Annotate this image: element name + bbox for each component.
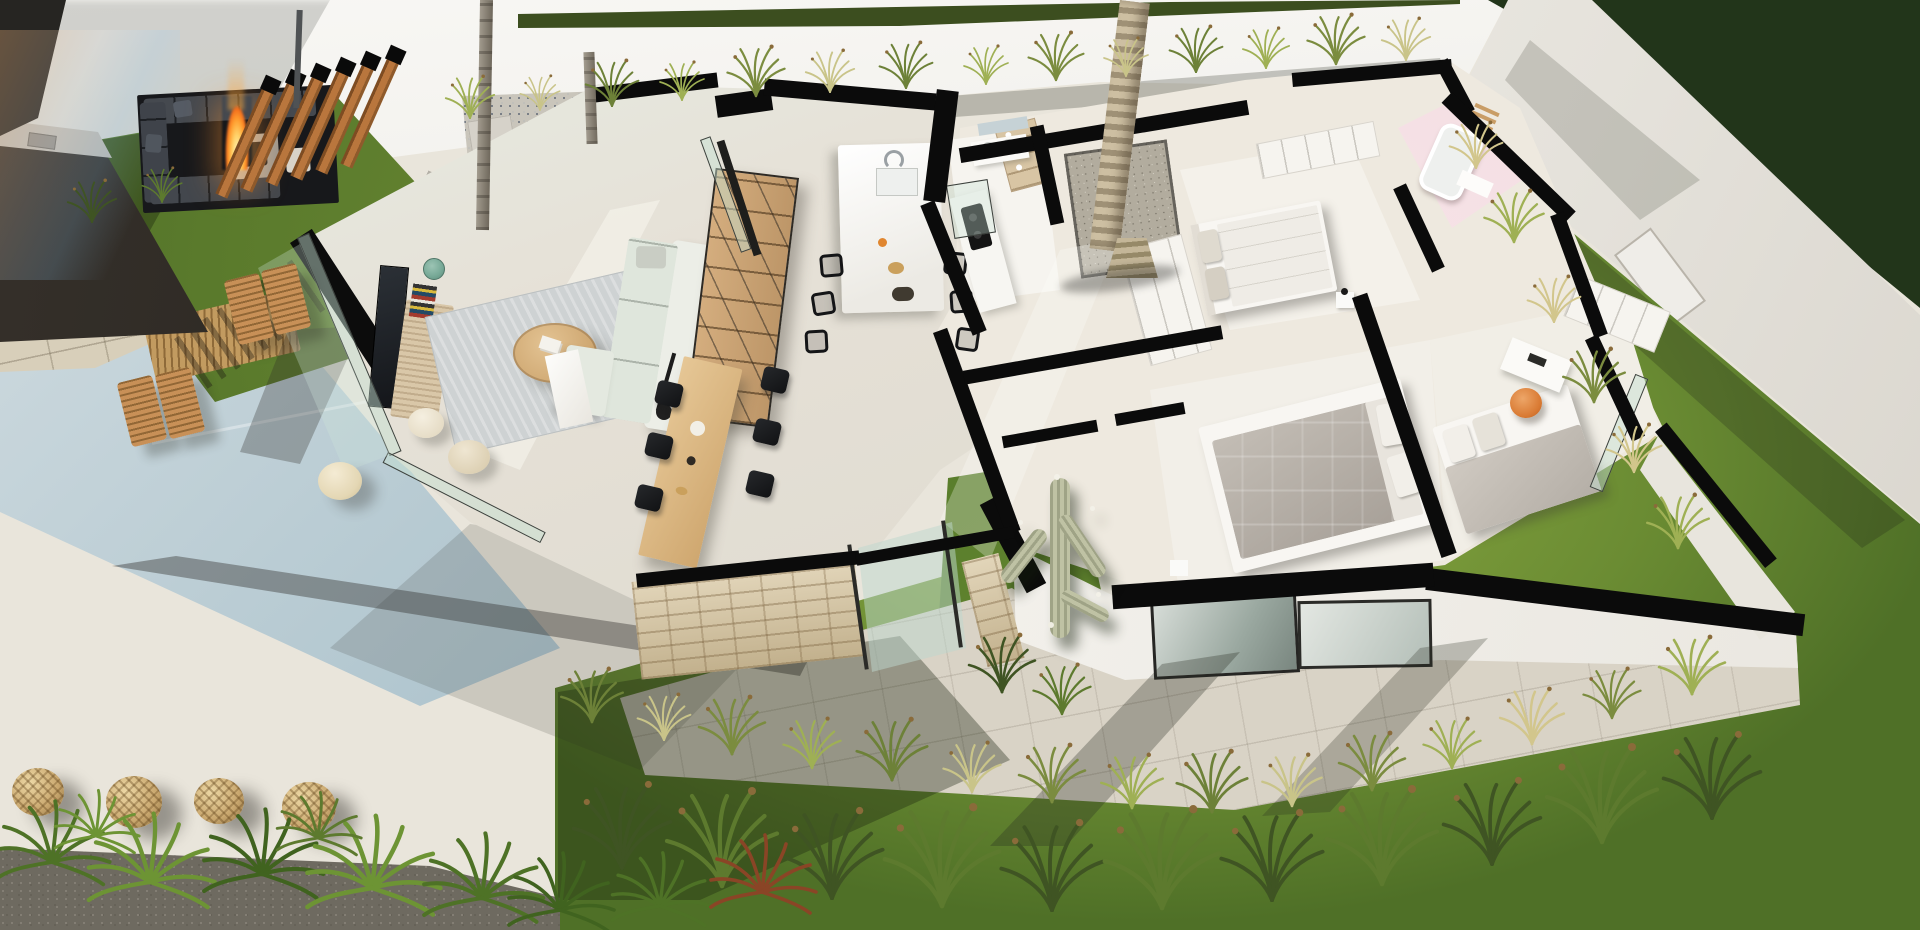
cut-wall [764, 79, 937, 111]
cactus-bloom [1090, 506, 1095, 511]
grass-tuft-icon [1563, 347, 1625, 402]
grass-tuft-icon [857, 717, 927, 780]
fan-palm-icon [424, 833, 543, 921]
glass-frame-post [717, 140, 762, 257]
dining-chair [654, 379, 685, 408]
fruit-bowl [888, 262, 904, 274]
grass-tuft-icon [1382, 16, 1430, 60]
grass-tuft-icon [1339, 731, 1405, 790]
wall-shadow-on-lawn [0, 0, 1920, 930]
door-frame [847, 544, 868, 669]
media-wall-shadow [0, 0, 1920, 930]
timber-slat-mat [143, 290, 301, 384]
pillow [1375, 401, 1406, 447]
sun-lounger [224, 273, 275, 346]
bed-east [1432, 384, 1602, 534]
island-decor [878, 238, 887, 247]
lens-flare [0, 30, 180, 280]
vanity-basin [982, 142, 995, 155]
fan-palm-icon [89, 814, 215, 908]
pouf [408, 408, 444, 438]
grass-tuft-icon [1170, 24, 1223, 72]
fan-palm-icon [0, 801, 110, 884]
grass-tuft-icon [561, 667, 623, 722]
outdoor-kitchen-counter [0, 0, 1920, 930]
grass-tuft-icon [1033, 663, 1090, 714]
grass-tuft-icon [1423, 717, 1480, 768]
floor-living-wing [0, 0, 1920, 930]
kitchen-island [838, 143, 944, 314]
shower-pole [293, 10, 302, 108]
grass-tuft-icon [1104, 36, 1148, 76]
outdoor-sofa-left [139, 102, 170, 203]
grass-tuft-icon [1500, 687, 1564, 744]
pit-side-table [285, 147, 311, 173]
sunlight-streak [0, 0, 1920, 930]
privacy-wall [545, 349, 594, 428]
pillow [1471, 411, 1506, 451]
grass-tuft-icon [68, 178, 116, 222]
bar-stool [810, 290, 836, 316]
grass-tuft-icon [699, 695, 765, 754]
door-frame [941, 520, 963, 647]
floor-north-bedroom [0, 0, 1920, 930]
cut-wall [933, 328, 1021, 535]
cut-wall [1114, 402, 1185, 426]
grass-tuft-icon [880, 40, 933, 88]
pergola-shadow-stripes [400, 171, 556, 292]
bar-stool [819, 253, 844, 278]
outdoor-kitchen [0, 0, 1920, 930]
cooktop [960, 203, 993, 251]
bar-stool [949, 289, 974, 314]
headboard [1190, 224, 1215, 316]
cut-wall [1030, 125, 1064, 226]
pergola-beam [215, 87, 274, 198]
grass-tuft-icon [969, 633, 1035, 692]
grass-tuft-icon [1327, 785, 1437, 884]
gravel-bed [0, 0, 1920, 930]
wardrobe-north [1256, 121, 1381, 179]
floor-family-bathroom [0, 0, 1920, 930]
table-decor-vase [686, 455, 697, 466]
grass-tuft-icon [1001, 819, 1102, 910]
hall-wardrobe [1120, 234, 1213, 366]
grass-tuft-icon [1101, 753, 1163, 808]
grass-tuft-icon [1583, 667, 1640, 718]
pool-coping-edge [0, 0, 1920, 930]
pouf [448, 440, 490, 474]
dining-chair [634, 483, 665, 512]
grass-tuft-icon [574, 781, 671, 868]
tree-trunk-small [583, 52, 597, 144]
bar-stool [804, 329, 828, 353]
duvet [1217, 205, 1333, 307]
cut-wall [1550, 212, 1608, 339]
house-shadow-on-terrace [0, 0, 1920, 930]
grass-tuft-icon [1607, 423, 1662, 473]
facade-east [0, 0, 1920, 930]
red-plant-icon [711, 835, 816, 913]
hedge-strip [0, 0, 1920, 930]
tree-shadow-on-wall [0, 0, 1920, 930]
bar-stool [943, 251, 968, 276]
grass-tuft-icon [943, 741, 1000, 792]
dining-chair [760, 365, 791, 394]
pillow [1204, 266, 1230, 301]
grass-tuft-icon [1177, 749, 1247, 812]
grass-tuft-icon [520, 74, 560, 110]
rug [425, 271, 659, 456]
grass-tuft-icon [638, 692, 691, 740]
sunlight-streak [0, 0, 1920, 930]
cactus-bloom [1018, 520, 1023, 525]
palm-shadow [1059, 260, 1181, 298]
grass-tuft-icon [1243, 26, 1289, 68]
pillow [1386, 451, 1421, 498]
sun-lounger [261, 263, 312, 336]
vanity-basin [1002, 139, 1015, 152]
entry-paver [513, 127, 563, 173]
bathroom-vanity [970, 134, 1029, 166]
outdoor-sink [27, 132, 57, 150]
cut-wall [980, 495, 1046, 594]
grass-tuft-icon [1444, 777, 1541, 864]
cut-wall-cap-stone [636, 550, 860, 587]
sofa-cushion [636, 246, 666, 269]
floor-bedroom-wing [0, 0, 1920, 930]
grass-tuft-icon [1547, 743, 1657, 842]
grass-tuft-icon [1528, 274, 1581, 322]
trees-top-right [0, 0, 1920, 930]
cactus-arm [998, 526, 1050, 586]
grass-tuft-icon [667, 787, 777, 886]
cactus [1008, 472, 1108, 652]
garden-gate [1614, 227, 1706, 328]
grass-tuft-icon [885, 803, 999, 906]
pergola-beam [315, 63, 374, 174]
grass-tuft-icon [783, 717, 840, 768]
kitchen-sink [876, 168, 918, 196]
flame-streak [228, 58, 244, 110]
tree-shadow-on-east-wall [0, 0, 1920, 930]
shower-enclosure [946, 179, 996, 239]
fan-palm-icon [509, 853, 614, 930]
grass-tuft-icon [1659, 635, 1725, 694]
pergola-beam [240, 81, 299, 192]
grass-tuft-icon [1307, 13, 1364, 64]
cut-wall [1292, 59, 1453, 87]
media-sideboard [390, 299, 454, 423]
outdoor-sofa-front [149, 172, 280, 205]
cut-wall [715, 88, 774, 118]
stone-pier [962, 553, 1025, 667]
grass-tuft-icon [1484, 189, 1543, 242]
pillow [1197, 229, 1223, 264]
dining-chair [752, 417, 783, 446]
tableware [1005, 131, 1012, 138]
cut-wall [1002, 420, 1099, 448]
magazine [538, 335, 561, 354]
table-decor [675, 486, 688, 496]
grass-tuft-icon [1647, 493, 1709, 548]
sun-lounger [117, 375, 168, 448]
grass-tuft-icon [586, 58, 639, 106]
cut-wall [1425, 568, 1805, 636]
glass-wall-south [383, 452, 546, 543]
facade-shadow [0, 0, 1920, 930]
bathtub [1415, 120, 1486, 204]
table-decor-plate [689, 419, 707, 437]
dining-chair [644, 431, 675, 460]
cut-wall [1655, 423, 1777, 568]
dining-chair [745, 469, 776, 498]
tv-screen [368, 265, 409, 409]
sheet-fold [1365, 396, 1424, 522]
sunken-lounge [137, 85, 339, 213]
pink-vanity [1456, 170, 1494, 198]
floor-plan-render [0, 0, 1920, 930]
wardrobe-east [1563, 275, 1670, 353]
grass-tuft-icon [1664, 731, 1761, 818]
pillow [1441, 423, 1476, 463]
lawn-shade-bottom [0, 0, 1920, 930]
pergola-beam [290, 69, 349, 180]
palm-courtyard-pebbles [1064, 139, 1185, 278]
cactus-trunk [1050, 478, 1070, 638]
kitchen-wall-counter [949, 189, 1016, 313]
grass-tuft-icon [1029, 31, 1084, 81]
floor-master-bedroom [0, 0, 1920, 930]
palm-trunk-base [1106, 238, 1158, 278]
tree-trunk [476, 0, 493, 230]
nightstand [1336, 292, 1354, 308]
planting-overlay [0, 0, 1920, 930]
cut-wall [1393, 183, 1445, 272]
cut-wall [1112, 563, 1435, 609]
fan-palm-icon [612, 853, 710, 926]
cactus-courtyard-lawn [0, 0, 1920, 930]
coffee-table-round [513, 323, 597, 383]
entry-paver [467, 115, 517, 161]
pool-ripple [152, 398, 378, 445]
table-lamp [1404, 438, 1412, 446]
terrace-stool [318, 462, 362, 500]
grass-tuft-icon [727, 45, 784, 96]
cut-wall [1442, 92, 1576, 222]
bed-north [1190, 200, 1337, 315]
desk-sign [1527, 353, 1547, 367]
rattan-lantern [282, 782, 336, 832]
floor-pink-bathroom [0, 0, 1920, 930]
sofa [570, 228, 718, 434]
rattan-lantern [106, 776, 162, 828]
open-shelf-unit [994, 118, 1052, 193]
grass-tuft-icon [446, 74, 494, 118]
master-window [1150, 592, 1300, 680]
sun-lounger [155, 367, 206, 440]
boundary-wall-north [0, 0, 1920, 930]
corner-shade [0, 0, 1920, 930]
facade-shadow [0, 0, 1920, 930]
floor-lamp-arc [656, 353, 676, 412]
cut-wall [1435, 58, 1475, 116]
sofa-back [643, 240, 718, 435]
duvet-grey [1445, 424, 1602, 534]
grass-tuft-icon [142, 166, 182, 202]
bed-master [1198, 378, 1436, 574]
grass-tuft-icon [1105, 805, 1219, 908]
tableware [1015, 164, 1022, 171]
kitchen-faucet [884, 150, 904, 170]
pool-ripple [72, 311, 269, 352]
fan-palm-icon [204, 809, 323, 897]
bathroom-mirror [977, 116, 1028, 136]
nightstand [1170, 560, 1188, 576]
cut-wall-cap-door [855, 526, 1015, 566]
lawn-top-left [0, 0, 1920, 930]
grass-tuft-icon [1019, 743, 1085, 802]
cactus-bloom [1096, 592, 1101, 597]
fan-palm-icon [277, 792, 361, 854]
pergola-beam [265, 75, 324, 186]
cut-wall [1352, 293, 1457, 558]
serving-board [892, 287, 914, 302]
tableware [1020, 144, 1029, 153]
cut-wall [959, 100, 1249, 163]
rattan-lantern [194, 778, 244, 824]
floor-east-bedroom [0, 0, 1920, 930]
rattan-lantern [12, 768, 64, 816]
window-east-bedroom [1590, 374, 1649, 492]
cactus-arm [1059, 588, 1111, 625]
burner [973, 230, 983, 240]
cut-wall [963, 325, 1223, 384]
cactus-arm [1055, 512, 1109, 581]
cactus-bloom [1054, 474, 1060, 480]
desk [1500, 337, 1572, 392]
boundary-wall-east [0, 0, 1920, 930]
glass-wall-entry [700, 136, 751, 253]
desk-chair-teal [423, 258, 445, 280]
palm-trunk [1090, 0, 1150, 252]
pillar-long-shadow [0, 0, 1920, 930]
towel-ladder [1474, 103, 1499, 117]
planting-strip-shadow [0, 0, 1920, 930]
stone-accent-wall [631, 559, 864, 680]
floor-lamp-shade [656, 404, 672, 420]
garden-lawn [0, 0, 1920, 930]
sliding-glass-door [0, 0, 1920, 930]
grass-tuft-icon [660, 60, 704, 100]
facade-south [0, 0, 1920, 930]
outdoor-cushion [145, 134, 163, 153]
fan-palm-icon [55, 790, 139, 852]
grass-tuft-icon [781, 807, 882, 898]
glass-reflection [0, 0, 1920, 930]
stone-tile-deck [0, 0, 1920, 930]
dining-table [638, 356, 742, 568]
sunlight-streak [0, 0, 1920, 930]
fire-bowl [240, 141, 268, 167]
grass-tuft-icon [1450, 120, 1503, 168]
media-wall [290, 229, 421, 411]
sofa-chaise [557, 344, 615, 417]
fire-pit [232, 132, 281, 179]
grass-tuft-icon [964, 44, 1008, 84]
book-stack [409, 282, 437, 319]
sofa-seats [601, 237, 679, 425]
outdoor-cushion [173, 100, 193, 119]
pergola-beam [340, 57, 399, 168]
cut-wall [594, 73, 719, 103]
grass-tuft-icon [806, 48, 854, 92]
cut-wall [1585, 334, 1645, 441]
garden-tile-path [0, 0, 1920, 930]
entry-pebble-bed [462, 88, 700, 185]
glass-wall-west [297, 233, 402, 456]
east-wall-shadow-on-lawn [0, 0, 1920, 930]
bar-stool [955, 327, 981, 353]
bookshelf [685, 168, 799, 428]
bedroom-window [1297, 599, 1432, 669]
cut-wall [923, 89, 958, 203]
flame [222, 96, 252, 170]
cactus-bloom [1048, 622, 1054, 628]
accent-chair-orange [1510, 388, 1542, 418]
grass-tuft-icon [1262, 753, 1321, 806]
pergola-shadow-stripes [174, 255, 332, 389]
pool [0, 0, 1920, 930]
duvet-quilted [1212, 402, 1399, 560]
cut-wall [920, 200, 986, 335]
outdoor-sofa-back [143, 90, 316, 125]
fan-palm-icon [307, 816, 440, 915]
grass-tuft-icon [1221, 809, 1322, 900]
burner [968, 213, 978, 223]
table-lamp [1341, 288, 1348, 295]
